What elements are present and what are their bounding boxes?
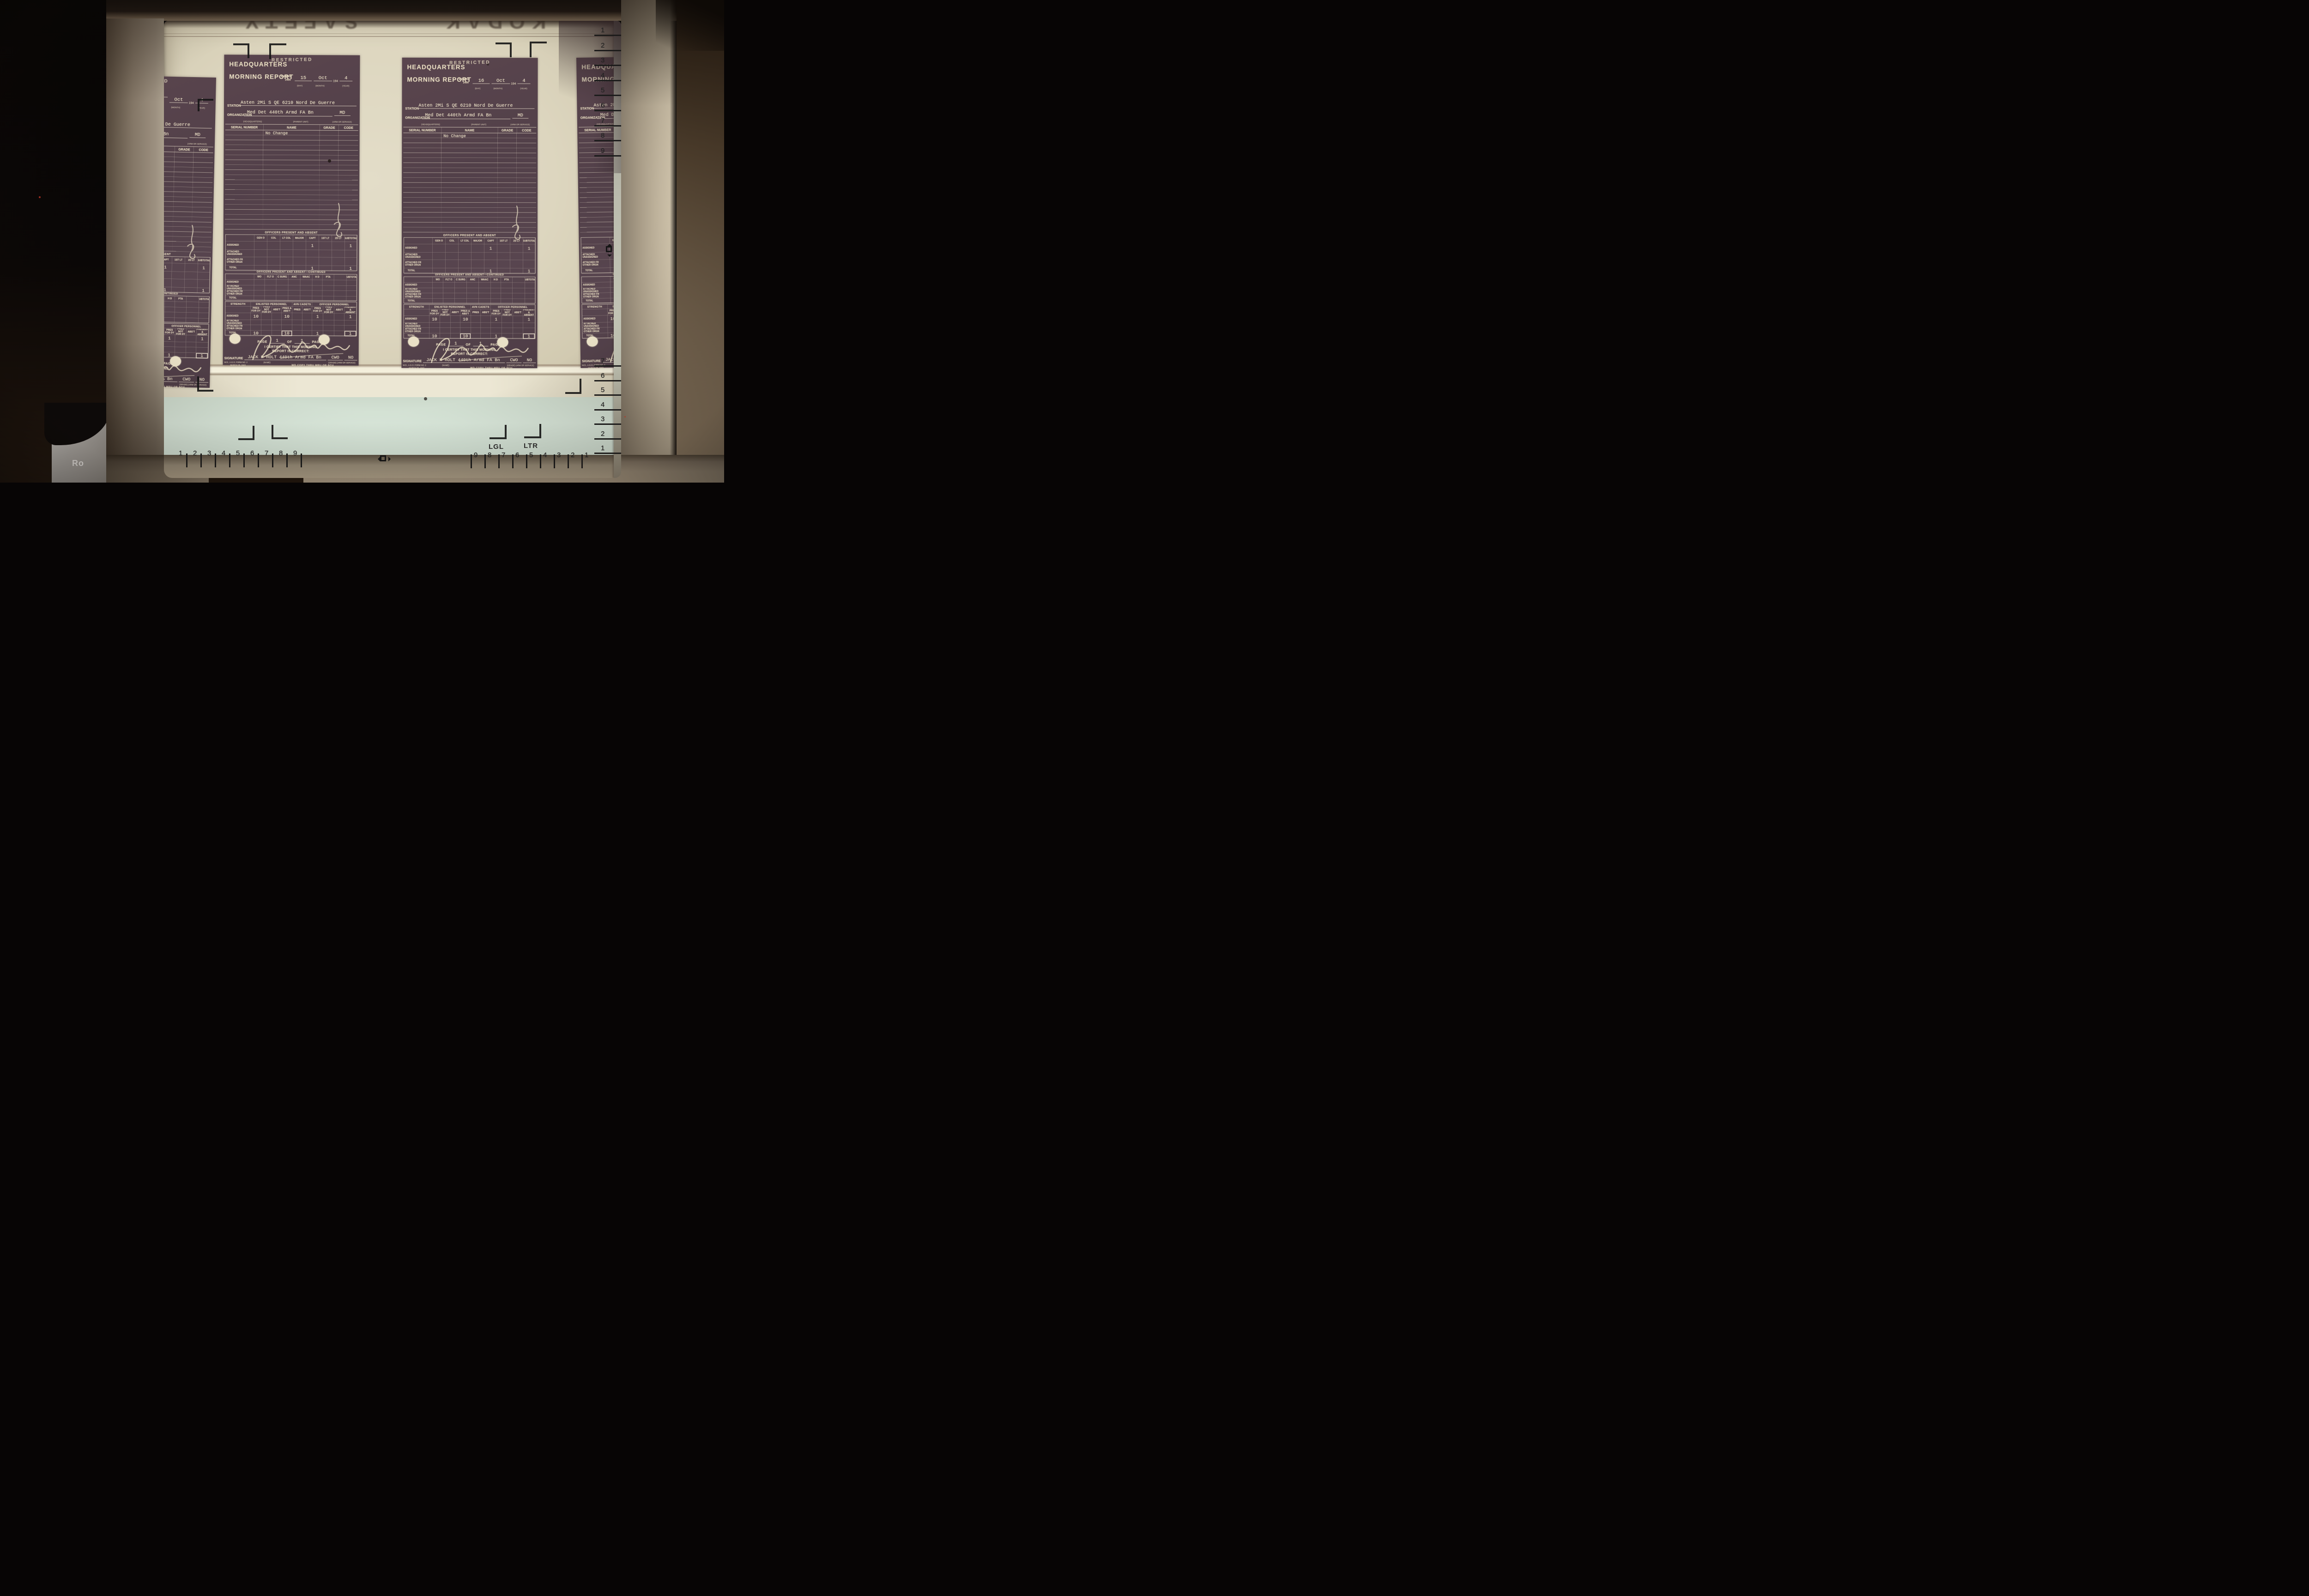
center-alignment-icon <box>377 455 391 463</box>
col-code: CODE <box>194 147 213 152</box>
organization-sublabels: (HEADQUARTERS) (PARENT UNIT) (ARM OR SER… <box>164 140 215 143</box>
registration-mark-icon <box>197 376 213 392</box>
officers-assigned-capt: 1 <box>484 244 497 253</box>
form-footer-line2: MARCH 25, 1943 WD COPY THRU MRU OR SCU <box>224 363 357 367</box>
ruler-number: 3 <box>207 449 222 457</box>
ruler-number: 2 <box>193 449 207 457</box>
ruler-number: 7 <box>265 449 279 457</box>
year-sublabel: (YEAR) <box>520 87 527 90</box>
registration-mark-icon <box>233 43 249 58</box>
ruler-number: 5 <box>236 449 250 457</box>
station-field: Asten 2Mi S QE 6210 Nord De Guerre <box>418 103 534 109</box>
signature-arm-field: NO <box>345 355 357 361</box>
registration-mark-icon <box>198 99 213 111</box>
officers-assigned-subtotal: 1 <box>345 242 357 250</box>
signature-name-field: JACK H HOLT 440th Armd FA Bn <box>423 357 505 363</box>
ruler-number: 6 <box>250 449 265 457</box>
col-serial-number: SERIAL NUMBER <box>225 124 264 130</box>
signature-row: SIGNATURE JACK H HOLT 440th Armd FA Bn C… <box>403 357 536 363</box>
punch-hole-left <box>230 333 241 344</box>
reader-bezel-left <box>106 18 164 483</box>
restricted-stamp: RESTRICTED <box>164 79 169 84</box>
officers-continued-title: OFFICERS PRESENT AND ABSENT—CONTINUED <box>223 270 359 273</box>
ruler-number: 4 <box>601 72 604 87</box>
station-field: Asten 2Mi S QE 6210 Nord De Guerre <box>164 121 212 129</box>
col-serial-number: SERIAL NUMBER <box>579 127 617 133</box>
morning-report-form: RESTRICTED HEADQUARTERS MORNING REPORT E… <box>401 58 538 369</box>
ruler-number: 2 <box>601 42 604 57</box>
ruler-number: 9 <box>293 449 308 457</box>
col-grade: GRADE <box>175 146 194 152</box>
signature-label: SIGNATURE <box>403 359 422 363</box>
ending-month-field: Oct <box>314 75 332 81</box>
ruler-number: 1 <box>601 26 604 42</box>
reader-side-housing <box>677 0 724 483</box>
officers-section-title: OFFICERS PRESENT AND ABSENT <box>224 230 359 234</box>
month-sublabel: (MONTH) <box>315 85 325 87</box>
col-name: NAME <box>264 125 320 130</box>
organization-field: Med Det 440th Armd FA Bn <box>425 113 510 118</box>
ruler-number: 6 <box>512 451 526 459</box>
ending-year-field: 4 <box>517 78 530 84</box>
signature-grade-field: CWO <box>179 376 194 382</box>
ruler-number: 3 <box>554 451 568 459</box>
officers-assigned-subtotal: 1 <box>198 264 210 272</box>
station-label: STATION <box>405 107 419 110</box>
officers-section-title: OFFICERS PRESENT AND ABSENT <box>402 234 538 237</box>
form-frame-partial-left: RESTRICTED HEADQUARTERS MORNING REPORT E… <box>164 75 216 388</box>
signature-name-field: JACK H HOLT 440th Armd FA Bn <box>244 355 326 361</box>
form-frame-oct-16: RESTRICTED HEADQUARTERS MORNING REPORT E… <box>401 58 538 369</box>
signature-grade-field: CWO <box>328 355 343 360</box>
ruler-number: 4 <box>601 401 604 416</box>
form-title-line1: HEADQUARTERS <box>407 64 465 71</box>
ruler-number: 6 <box>601 372 604 387</box>
year-prefix: 194 <box>189 101 194 105</box>
film-top-edge <box>164 21 621 28</box>
officers-continued-table: WOFLT O C SURGANC WAACH D PTA SUBTOTAL A… <box>225 273 357 301</box>
station-field: Asten 2Mi S QE 6210 Nord De Guerre <box>241 100 357 107</box>
officers-assigned-capt: 1 <box>164 263 172 272</box>
group-officer: OFFICER PERSONNEL <box>312 302 357 307</box>
officers-continued-title: OFFICERS PRESENT AND ABSENT—CONTINUED <box>402 273 538 277</box>
ruler-number: 7 <box>601 357 604 372</box>
ruler-number: 7 <box>498 451 512 459</box>
ending-day-field <box>164 97 168 97</box>
officers-table: GEN OCOL LT COLMAJOR CAPT1ST LT 2D LTSUB… <box>225 234 357 271</box>
ending-label: ENDING2400 <box>459 78 468 85</box>
roster-entry: No Change <box>266 131 288 136</box>
microfilm-reader-photo: Ro KODAK SAFETY RESTRICTED HEADQUARTERS … <box>0 0 724 483</box>
red-speck <box>624 416 626 417</box>
registration-mark-icon <box>269 43 286 59</box>
ruler-number: 5 <box>601 386 604 401</box>
group-enlisted: ENLISTED PERSONNEL <box>251 302 292 307</box>
col-code: CODE <box>517 127 536 133</box>
ruler-number: 8 <box>279 449 293 457</box>
letter-size-label: LTR <box>524 442 538 450</box>
ruler-bottom-left: 123456789 <box>179 449 308 457</box>
reader-bezel-right <box>621 0 677 483</box>
roster-entry: No Change <box>443 134 466 139</box>
screen-lower-strip <box>164 397 621 455</box>
ending-label: ENDING2400 <box>281 75 290 82</box>
ruler-number: 8 <box>601 132 604 147</box>
year-prefix: 194 <box>333 79 338 83</box>
film-guide-line <box>164 36 615 37</box>
ruler-number: 1 <box>581 451 595 459</box>
arm-of-service-field: MD <box>189 132 206 138</box>
arm-of-service-field: MD <box>512 113 528 119</box>
ruler-number: 9 <box>601 147 604 162</box>
ruler-number: 3 <box>601 56 604 72</box>
month-sublabel: (MONTH) <box>493 87 502 90</box>
ruler-number: 8 <box>484 451 498 459</box>
form-title-line1: HEADQUARTERS <box>229 60 287 68</box>
signature-arm-field: NO <box>523 357 536 363</box>
punch-hole-left <box>408 337 419 347</box>
col-code: CODE <box>339 125 358 130</box>
month-sublabel: (MONTH) <box>171 106 181 109</box>
ruler-number: 5 <box>601 86 604 102</box>
device-brand-text: Ro <box>72 459 84 468</box>
ruler-right-bottom: 7654321 <box>601 357 604 459</box>
group-avn-cadets: AVN CADETS <box>292 302 312 307</box>
signature-label: SIGNATURE <box>582 359 601 363</box>
signature-grade-field: CWO <box>506 357 521 363</box>
ruler-number: 5 <box>526 451 540 459</box>
legal-size-label: LGL <box>489 443 504 451</box>
organization-sublabels: (HEADQUARTERS) (PARENT UNIT) (ARM OR SER… <box>402 123 538 124</box>
year-prefix: 194 <box>511 82 516 85</box>
registration-mark-icon <box>496 42 512 57</box>
signature-row: SIGNATURE JACK H HOLT 440th Armd FA Bn C… <box>224 354 357 360</box>
registration-mark-icon <box>272 425 288 439</box>
ending-day-field: 15 <box>295 75 312 81</box>
officers-table: GEN OCOL LT COLMAJOR CAPT1ST LT 2D LTSUB… <box>164 254 211 293</box>
strength-label: STRENGTH <box>225 302 251 306</box>
film-guide-line <box>164 33 615 34</box>
ruler-number: 4 <box>540 451 554 459</box>
ruler-number: 3 <box>601 415 604 430</box>
ruler-number: 4 <box>222 449 236 457</box>
ruler-number: 1 <box>601 444 604 459</box>
red-speck <box>39 196 41 198</box>
group-officer: OFFICER PERSONNEL <box>491 305 535 309</box>
roster-header-row: SERIAL NUMBER NAME GRADE CODE <box>403 127 536 133</box>
station-label: STATION <box>227 103 241 107</box>
day-sublabel: (DAY) <box>297 85 302 87</box>
shadow-top-right <box>656 0 724 51</box>
roster-header-row: SERIAL NUMBER NAME GRADE CODE <box>164 144 213 153</box>
morning-report-form: RESTRICTED HEADQUARTERS MORNING REPORT E… <box>164 75 216 388</box>
year-sublabel: (YEAR) <box>342 85 349 87</box>
morning-report-form: RESTRICTED HEADQUARTERS MORNING REPORT E… <box>223 54 360 365</box>
col-grade: GRADE <box>320 125 339 130</box>
col-serial-number: SERIAL NUMBER <box>403 127 441 133</box>
ruler-number: 9 <box>471 451 484 459</box>
group-enlisted: ENLISTED PERSONNEL <box>429 305 471 309</box>
registration-mark-icon <box>565 379 581 394</box>
signature-label: SIGNATURE <box>224 356 243 360</box>
letter-size-bracket-icon <box>524 424 541 438</box>
registration-mark-icon <box>238 426 254 440</box>
edge-alignment-icon <box>606 243 614 257</box>
ending-month-field: Oct <box>491 78 510 84</box>
organization-field: Med Det 440th Armd FA Bn <box>164 130 188 137</box>
col-name: NAME <box>164 145 175 152</box>
officers-continued-table: WOFLT O C SURGANC WAACH D PTA SUBTOTAL A… <box>404 277 536 303</box>
ending-year-field: 4 <box>339 75 352 81</box>
organization-field: Med Det 440th Armd FA Bn <box>247 110 332 115</box>
officers-continued-table: WOFLT O C SURGANC WAACH D PTA SUBTOTAL A… <box>164 294 210 323</box>
dust-specks <box>164 21 165 22</box>
ruler-right-top: 123456789 <box>601 26 604 162</box>
ending-month-field: Oct <box>169 97 188 103</box>
officers-assigned-capt: 1 <box>306 242 319 250</box>
officers-assigned-subtotal: 1 <box>523 244 535 253</box>
day-sublabel: (DAY) <box>475 87 480 90</box>
ruler-bottom-right: 987654321 <box>471 451 595 459</box>
viewer-screen: KODAK SAFETY RESTRICTED HEADQUARTERS MOR… <box>164 21 621 478</box>
ruler-number: 2 <box>601 430 604 445</box>
col-name: NAME <box>441 127 498 133</box>
registration-mark-icon <box>530 42 547 57</box>
legal-size-bracket-icon <box>490 425 507 439</box>
organization-sublabels: (HEADQUARTERS) (PARENT UNIT) (ARM OR SER… <box>224 120 360 121</box>
officers-table: GEN OCOL LT COLMAJOR CAPT1ST LT 2D LTSUB… <box>404 237 536 273</box>
station-label: STATION <box>580 106 594 110</box>
group-avn-cadets: AVN CADETS <box>471 305 491 309</box>
ruler-number: 6 <box>601 102 604 117</box>
ruler-number: 1 <box>179 449 193 457</box>
ending-day-field: 16 <box>472 78 490 84</box>
ruler-number: 7 <box>601 117 604 132</box>
ruler-number: 2 <box>568 451 581 459</box>
col-grade: GRADE <box>498 127 517 133</box>
screen-below-film <box>164 375 615 397</box>
arm-of-service-field: MD <box>334 110 351 116</box>
strength-label: STRENGTH <box>404 305 429 309</box>
form-frame-oct-15: RESTRICTED HEADQUARTERS MORNING REPORT E… <box>223 54 360 365</box>
roster-header-row: SERIAL NUMBER NAME GRADE CODE <box>225 124 358 131</box>
form-footer-line2: MARCH 25, 1943 WD COPY THRU MRU OR SCU <box>403 367 536 370</box>
